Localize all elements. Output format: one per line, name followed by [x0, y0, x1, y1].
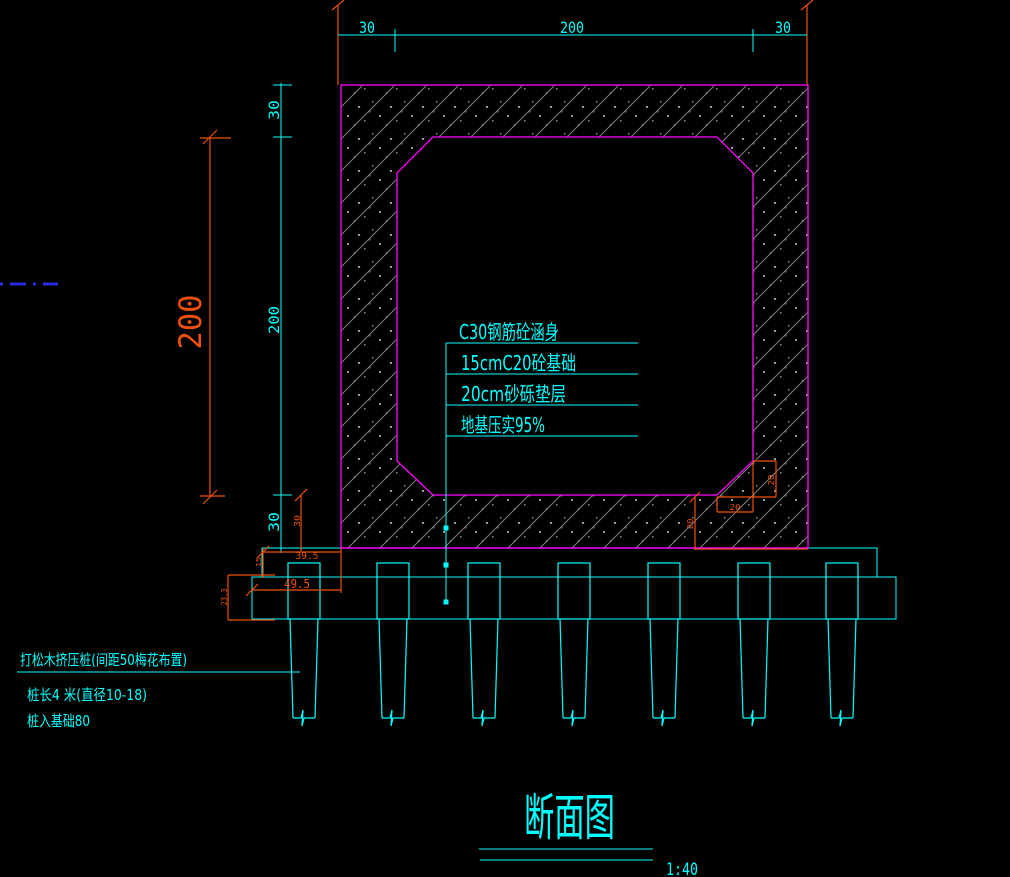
pile	[738, 563, 770, 726]
pile	[826, 563, 858, 726]
dim-layer1-thickness: 15	[255, 557, 263, 567]
section-drawing: 30 200 30 30 200 30 200 30 39.5 15	[0, 0, 1010, 877]
dim-inner-height: 200	[173, 295, 209, 350]
dim-footing-offset-upper: 39.5	[296, 551, 319, 562]
callout-c20-foundation: 15cmC20砼基础	[461, 351, 576, 375]
pile	[468, 563, 500, 726]
drawing-title: 断面图	[524, 789, 615, 847]
dim-corner-drop: 20	[686, 518, 695, 529]
dimension-inner-height: 200	[173, 130, 231, 504]
dim-footing-offset-lower: 49.5	[284, 577, 310, 591]
dim-chamfer-height: 20	[767, 474, 776, 485]
cad-viewport[interactable]: 30 200 30 30 200 30 200 30 39.5 15	[0, 0, 1010, 877]
callout-subgrade: 地基压实95%	[461, 413, 545, 437]
dimension-top: 30 200 30	[332, 0, 813, 85]
material-callouts: C30钢筋砼涵身 15cmC20砼基础 20cm砂砾垫层 地基压实95%	[444, 320, 639, 605]
culvert-body	[341, 85, 808, 548]
title-block: 断面图 1:40	[479, 789, 698, 877]
pile-note-line1: 打松木挤压桩(间距50梅花布置)	[20, 651, 187, 669]
pile	[377, 563, 409, 726]
callout-sand-gravel: 20cm砂砾垫层	[461, 382, 566, 406]
dimension-left-chain: 30 200 30	[267, 83, 292, 553]
drawing-scale: 1:40	[666, 860, 698, 877]
pile	[558, 563, 590, 726]
dim-chamfer-width: 20	[730, 503, 741, 512]
callout-c30-body: C30钢筋砼涵身	[459, 320, 559, 344]
pile-note-line3: 桩入基础80	[27, 712, 90, 730]
dim-left-top: 30	[267, 100, 283, 120]
foundation-layer-sand-gravel	[252, 577, 896, 619]
dim-top-center: 200	[560, 18, 584, 37]
pile	[648, 563, 680, 726]
dim-top-left: 30	[359, 18, 375, 37]
pile-note-line2: 桩长4 米(直径10-18)	[27, 686, 147, 704]
dim-left-bottom: 30	[267, 512, 283, 532]
dim-slab-thickness: 30	[293, 515, 302, 527]
pile-note: 打松木挤压桩(间距50梅花布置) 桩长4 米(直径10-18) 桩入基础80	[17, 651, 300, 730]
dim-left-middle: 200	[267, 306, 283, 334]
dim-layer2-thickness: 23.3	[220, 588, 229, 605]
dim-top-right: 30	[775, 18, 791, 37]
